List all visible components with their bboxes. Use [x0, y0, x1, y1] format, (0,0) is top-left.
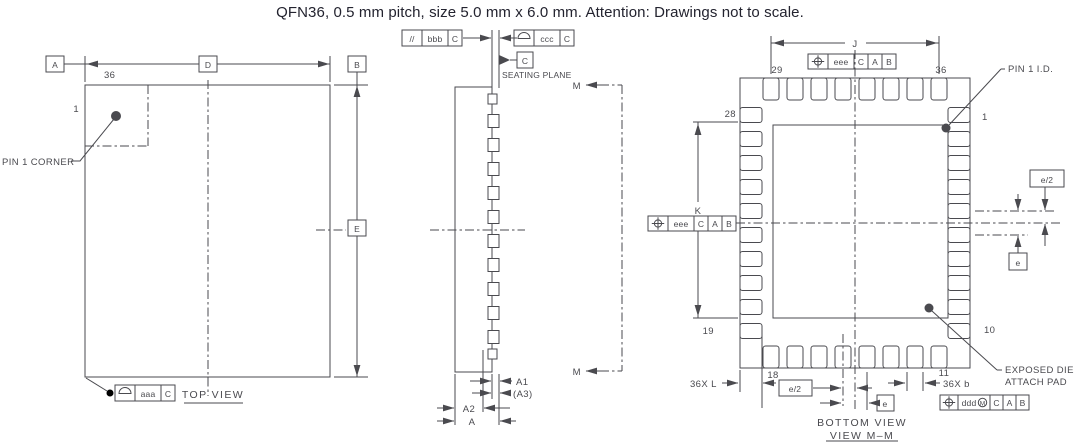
svg-text:aaa: aaa	[141, 389, 156, 399]
profile-of-surface-icon	[119, 388, 131, 394]
dim-e: E	[334, 72, 368, 377]
svg-text:eee: eee	[674, 219, 689, 229]
pin1-id-label: PIN 1 I.D.	[1008, 64, 1053, 75]
dim-e-half-bottom: e/2	[779, 380, 872, 396]
svg-text:e: e	[883, 399, 888, 409]
pin19-label: 19	[703, 326, 714, 337]
pin1-id-leader	[949, 69, 1005, 125]
exposed-pad-label-1: EXPOSED DIE	[1005, 365, 1074, 376]
svg-text:C: C	[165, 389, 171, 399]
true-position-icon	[812, 55, 824, 67]
svg-text:K: K	[695, 206, 702, 217]
drawing-canvas: QFN36, 0.5 mm pitch, size 5.0 mm x 6.0 m…	[0, 0, 1080, 442]
svg-text:C: C	[522, 56, 528, 66]
pin28-label: 28	[725, 109, 736, 120]
pin1-corner-dot	[111, 111, 121, 121]
pin1-corner-leader	[71, 119, 114, 161]
svg-text:bbb: bbb	[428, 34, 443, 44]
svg-text:e: e	[1016, 258, 1021, 268]
svg-text:A: A	[52, 60, 58, 70]
svg-text:B: B	[1020, 398, 1026, 408]
datum-c: C	[499, 52, 533, 68]
section-m-top-label: M	[573, 81, 581, 92]
side-view-leads	[488, 94, 499, 359]
pin36-label: 36	[935, 65, 946, 76]
svg-text:36X L: 36X L	[690, 379, 717, 390]
seating-plane-label: SEATING PLANE	[502, 70, 572, 80]
fcf-ccc: ccc C	[514, 30, 574, 46]
svg-text:e/2: e/2	[1041, 175, 1053, 185]
svg-text:M: M	[980, 401, 985, 408]
dim-a3-label: (A3)	[513, 389, 533, 400]
top-pin36-label: 36	[104, 70, 115, 81]
svg-text:B: B	[886, 57, 892, 67]
datum-b: B	[348, 56, 366, 72]
true-position-icon	[652, 217, 664, 229]
svg-text:B: B	[354, 60, 360, 70]
true-position-icon	[943, 396, 955, 408]
svg-text:J: J	[852, 39, 857, 50]
top-view-centerlines	[208, 80, 346, 396]
svg-text:B: B	[726, 219, 732, 229]
svg-text:C: C	[564, 34, 570, 44]
dim-e-half-right: e/2	[1030, 170, 1064, 246]
pin10-label: 10	[984, 325, 995, 336]
page-title: QFN36, 0.5 mm pitch, size 5.0 mm x 6.0 m…	[276, 4, 804, 21]
bottom-view: PIN 1 I.D. EXPOSED DIE ATTACH PAD J eee …	[648, 36, 1074, 442]
svg-text:C: C	[452, 34, 458, 44]
top-pin1-label: 1	[73, 104, 79, 115]
svg-text:36X b: 36X b	[943, 379, 970, 390]
bottom-view-caption2: VIEW M–M	[830, 430, 894, 442]
qfn36-package-drawing: QFN36, 0.5 mm pitch, size 5.0 mm x 6.0 m…	[0, 0, 1080, 442]
thickness-dimensions: A1 (A3) A2 A	[437, 350, 533, 428]
side-view: // bbb C ccc C C SEATING PLANE M	[402, 30, 622, 428]
fcf-eee-left: eee C A B	[648, 216, 736, 231]
parallelism-icon: //	[409, 34, 415, 44]
svg-text:C: C	[993, 398, 999, 408]
dim-e-bottom: e	[820, 372, 894, 411]
svg-text:ddd: ddd	[962, 398, 977, 408]
pin1-corner-label: PIN 1 CORNER	[2, 157, 74, 168]
dim-a-label: A	[469, 417, 476, 428]
svg-text:C: C	[858, 57, 864, 67]
dim-a2-label: A2	[463, 404, 475, 415]
pin18-label: 18	[767, 370, 778, 381]
svg-text:D: D	[205, 60, 211, 70]
datum-a: A	[46, 56, 64, 72]
svg-text:A: A	[712, 219, 718, 229]
fcf-ddd: ddd M C A B	[940, 395, 1029, 410]
svg-text:e/2: e/2	[789, 384, 801, 394]
pin11-label: 11	[939, 368, 950, 379]
exposed-pad-label-2: ATTACH PAD	[1005, 377, 1067, 388]
top-view-caption: TOP VIEW	[182, 389, 244, 401]
svg-text:A: A	[1007, 398, 1013, 408]
profile-of-surface-icon	[518, 33, 530, 39]
svg-text:ccc: ccc	[540, 34, 554, 44]
fcf-aaa: aaa C	[86, 378, 175, 401]
section-m-bottom-label: M	[573, 367, 581, 378]
fcf-eee-top: eee C A B	[808, 54, 896, 69]
top-view: PIN 1 CORNER 36 1 A D B	[2, 56, 368, 403]
pin29-label: 29	[771, 65, 782, 76]
section-line-m-m: M M	[573, 81, 622, 378]
svg-text:eee: eee	[834, 57, 849, 67]
pin1-label: 1	[982, 112, 988, 123]
bottom-view-caption: BOTTOM VIEW	[817, 417, 907, 429]
dim-b: 36X b	[888, 372, 970, 391]
exposed-die-pad	[773, 125, 948, 318]
svg-text:A: A	[872, 57, 878, 67]
fcf-bbb: // bbb C	[402, 30, 462, 46]
svg-text:E: E	[354, 224, 360, 234]
dim-e-right: e	[1009, 194, 1027, 270]
dim-a1-label: A1	[516, 377, 528, 388]
svg-text:C: C	[698, 219, 704, 229]
